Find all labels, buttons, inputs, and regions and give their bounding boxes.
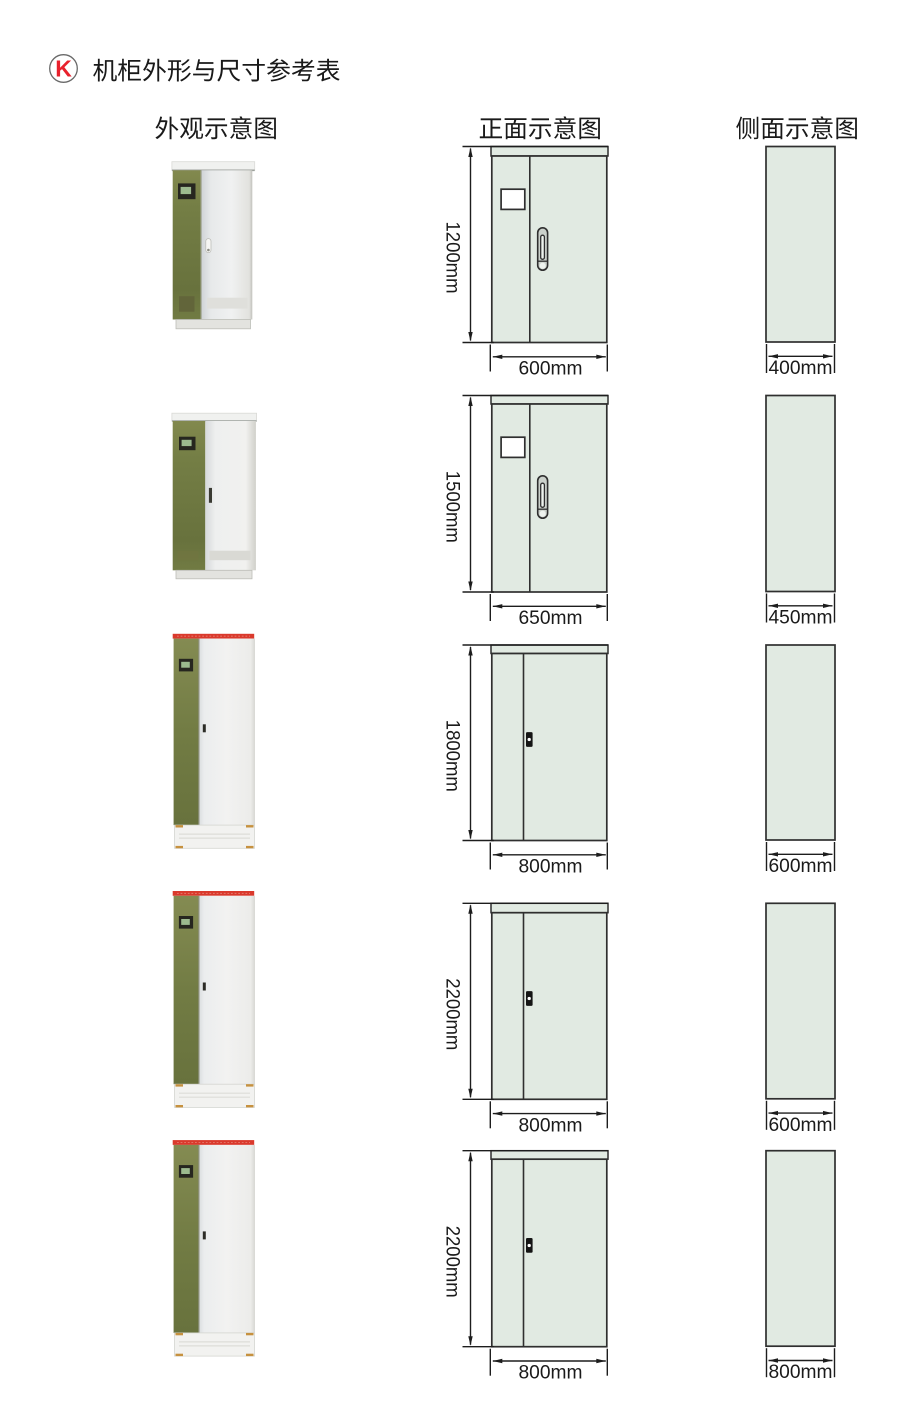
svg-text:400mm: 400mm (769, 358, 833, 379)
svg-text:2200mm: 2200mm (442, 1226, 463, 1298)
svg-text:600mm: 600mm (769, 856, 833, 877)
svg-text:800mm: 800mm (519, 1115, 583, 1136)
svg-text:1500mm: 1500mm (442, 471, 463, 543)
svg-text:1800mm: 1800mm (442, 720, 463, 792)
svg-text:K: K (55, 55, 72, 81)
svg-text:2200mm: 2200mm (442, 978, 463, 1050)
svg-text:1200mm: 1200mm (442, 222, 463, 294)
svg-text:450mm: 450mm (769, 608, 833, 629)
svg-text:600mm: 600mm (769, 1115, 833, 1136)
svg-text:600mm: 600mm (519, 359, 583, 380)
svg-text:650mm: 650mm (519, 608, 583, 629)
svg-text:800mm: 800mm (519, 1363, 583, 1384)
svg-text:800mm: 800mm (519, 857, 583, 878)
svg-text:800mm: 800mm (769, 1362, 833, 1383)
